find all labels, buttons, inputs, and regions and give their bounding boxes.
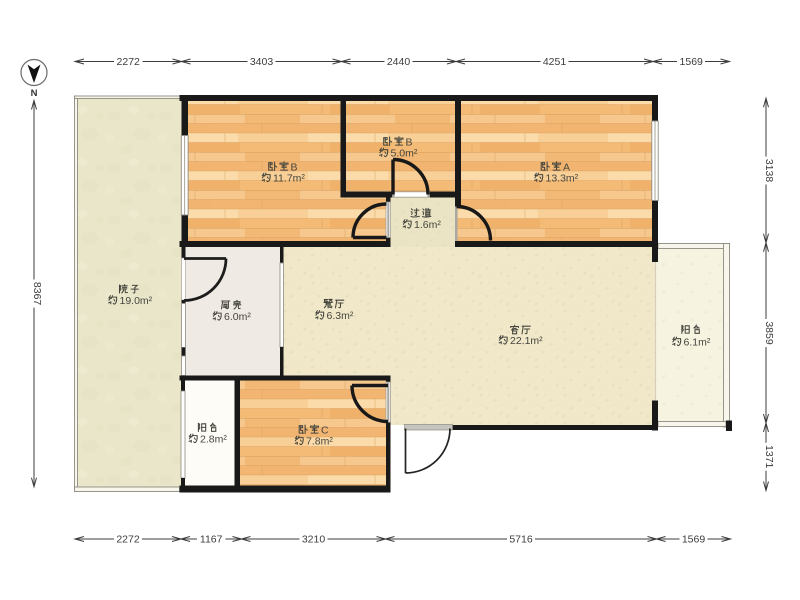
svg-text:1.6m²: 1.6m² — [414, 219, 441, 231]
svg-text:7.8m²: 7.8m² — [306, 436, 333, 448]
svg-text:1569: 1569 — [682, 534, 706, 546]
svg-text:1371: 1371 — [763, 445, 775, 469]
svg-text:3859: 3859 — [763, 321, 775, 345]
svg-text:11.7m²: 11.7m² — [273, 173, 305, 185]
svg-text:2272: 2272 — [117, 56, 141, 68]
svg-text:1167: 1167 — [200, 534, 223, 546]
svg-text:13.3m²: 13.3m² — [546, 173, 579, 185]
svg-text:6.0m²: 6.0m² — [224, 311, 251, 323]
svg-text:22.1m²: 22.1m² — [510, 335, 543, 347]
svg-text:2.8m²: 2.8m² — [200, 434, 227, 446]
svg-text:19.0m²: 19.0m² — [120, 295, 153, 307]
svg-text:1569: 1569 — [680, 56, 704, 68]
svg-text:5.0m²: 5.0m² — [391, 148, 418, 160]
svg-text:3138: 3138 — [763, 159, 775, 183]
svg-text:N: N — [31, 88, 38, 99]
svg-text:3210: 3210 — [302, 534, 326, 546]
svg-text:6.1m²: 6.1m² — [684, 337, 711, 349]
svg-text:8367: 8367 — [31, 282, 43, 306]
svg-text:2440: 2440 — [387, 56, 411, 68]
svg-text:3403: 3403 — [250, 56, 274, 68]
svg-text:2272: 2272 — [116, 534, 140, 546]
svg-text:4251: 4251 — [543, 56, 567, 68]
svg-text:5716: 5716 — [509, 534, 533, 546]
svg-text:6.3m²: 6.3m² — [327, 310, 354, 322]
